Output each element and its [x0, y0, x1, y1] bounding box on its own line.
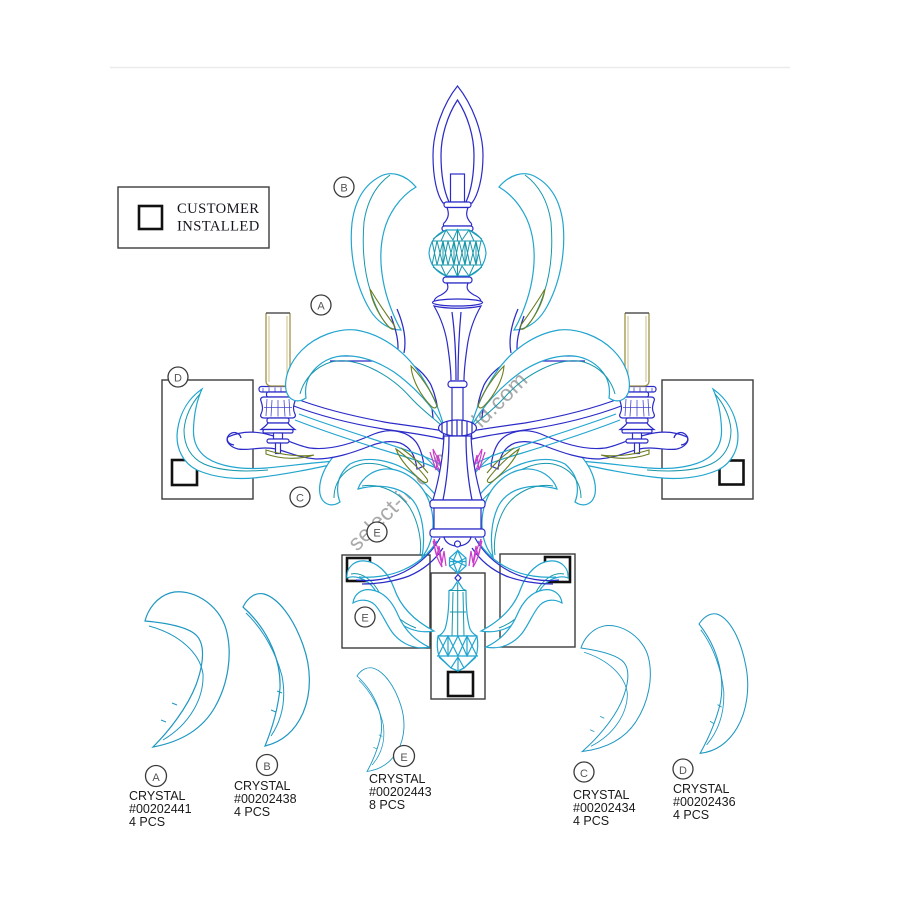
svg-text:D: D — [174, 373, 182, 385]
svg-text:D: D — [679, 765, 687, 777]
svg-text:8 PCS: 8 PCS — [369, 798, 405, 812]
svg-text:CRYSTAL: CRYSTAL — [369, 772, 426, 786]
svg-text:CRYSTAL: CRYSTAL — [234, 779, 291, 793]
svg-text:#00202441: #00202441 — [129, 802, 192, 816]
svg-text:E: E — [361, 613, 368, 625]
svg-text:#00202438: #00202438 — [234, 792, 297, 806]
svg-text:CRYSTAL: CRYSTAL — [129, 789, 186, 803]
svg-text:#00202436: #00202436 — [673, 795, 736, 809]
svg-text:#00202443: #00202443 — [369, 785, 432, 799]
svg-text:E: E — [373, 528, 380, 540]
svg-text:4 PCS: 4 PCS — [573, 814, 609, 828]
svg-text:4 PCS: 4 PCS — [234, 805, 270, 819]
svg-text:CRYSTAL: CRYSTAL — [573, 788, 630, 802]
svg-text:C: C — [296, 493, 304, 505]
svg-text:#00202434: #00202434 — [573, 801, 636, 815]
svg-text:B: B — [340, 183, 347, 195]
svg-text:CUSTOMER: CUSTOMER — [177, 201, 259, 217]
svg-text:C: C — [580, 768, 588, 780]
svg-text:E: E — [400, 752, 407, 764]
svg-text:A: A — [152, 772, 160, 784]
svg-text:4 PCS: 4 PCS — [673, 808, 709, 822]
svg-text:A: A — [317, 301, 325, 313]
svg-text:INSTALLED: INSTALLED — [177, 219, 260, 235]
svg-text:4 PCS: 4 PCS — [129, 815, 165, 829]
svg-text:CRYSTAL: CRYSTAL — [673, 782, 730, 796]
svg-text:B: B — [263, 761, 270, 773]
